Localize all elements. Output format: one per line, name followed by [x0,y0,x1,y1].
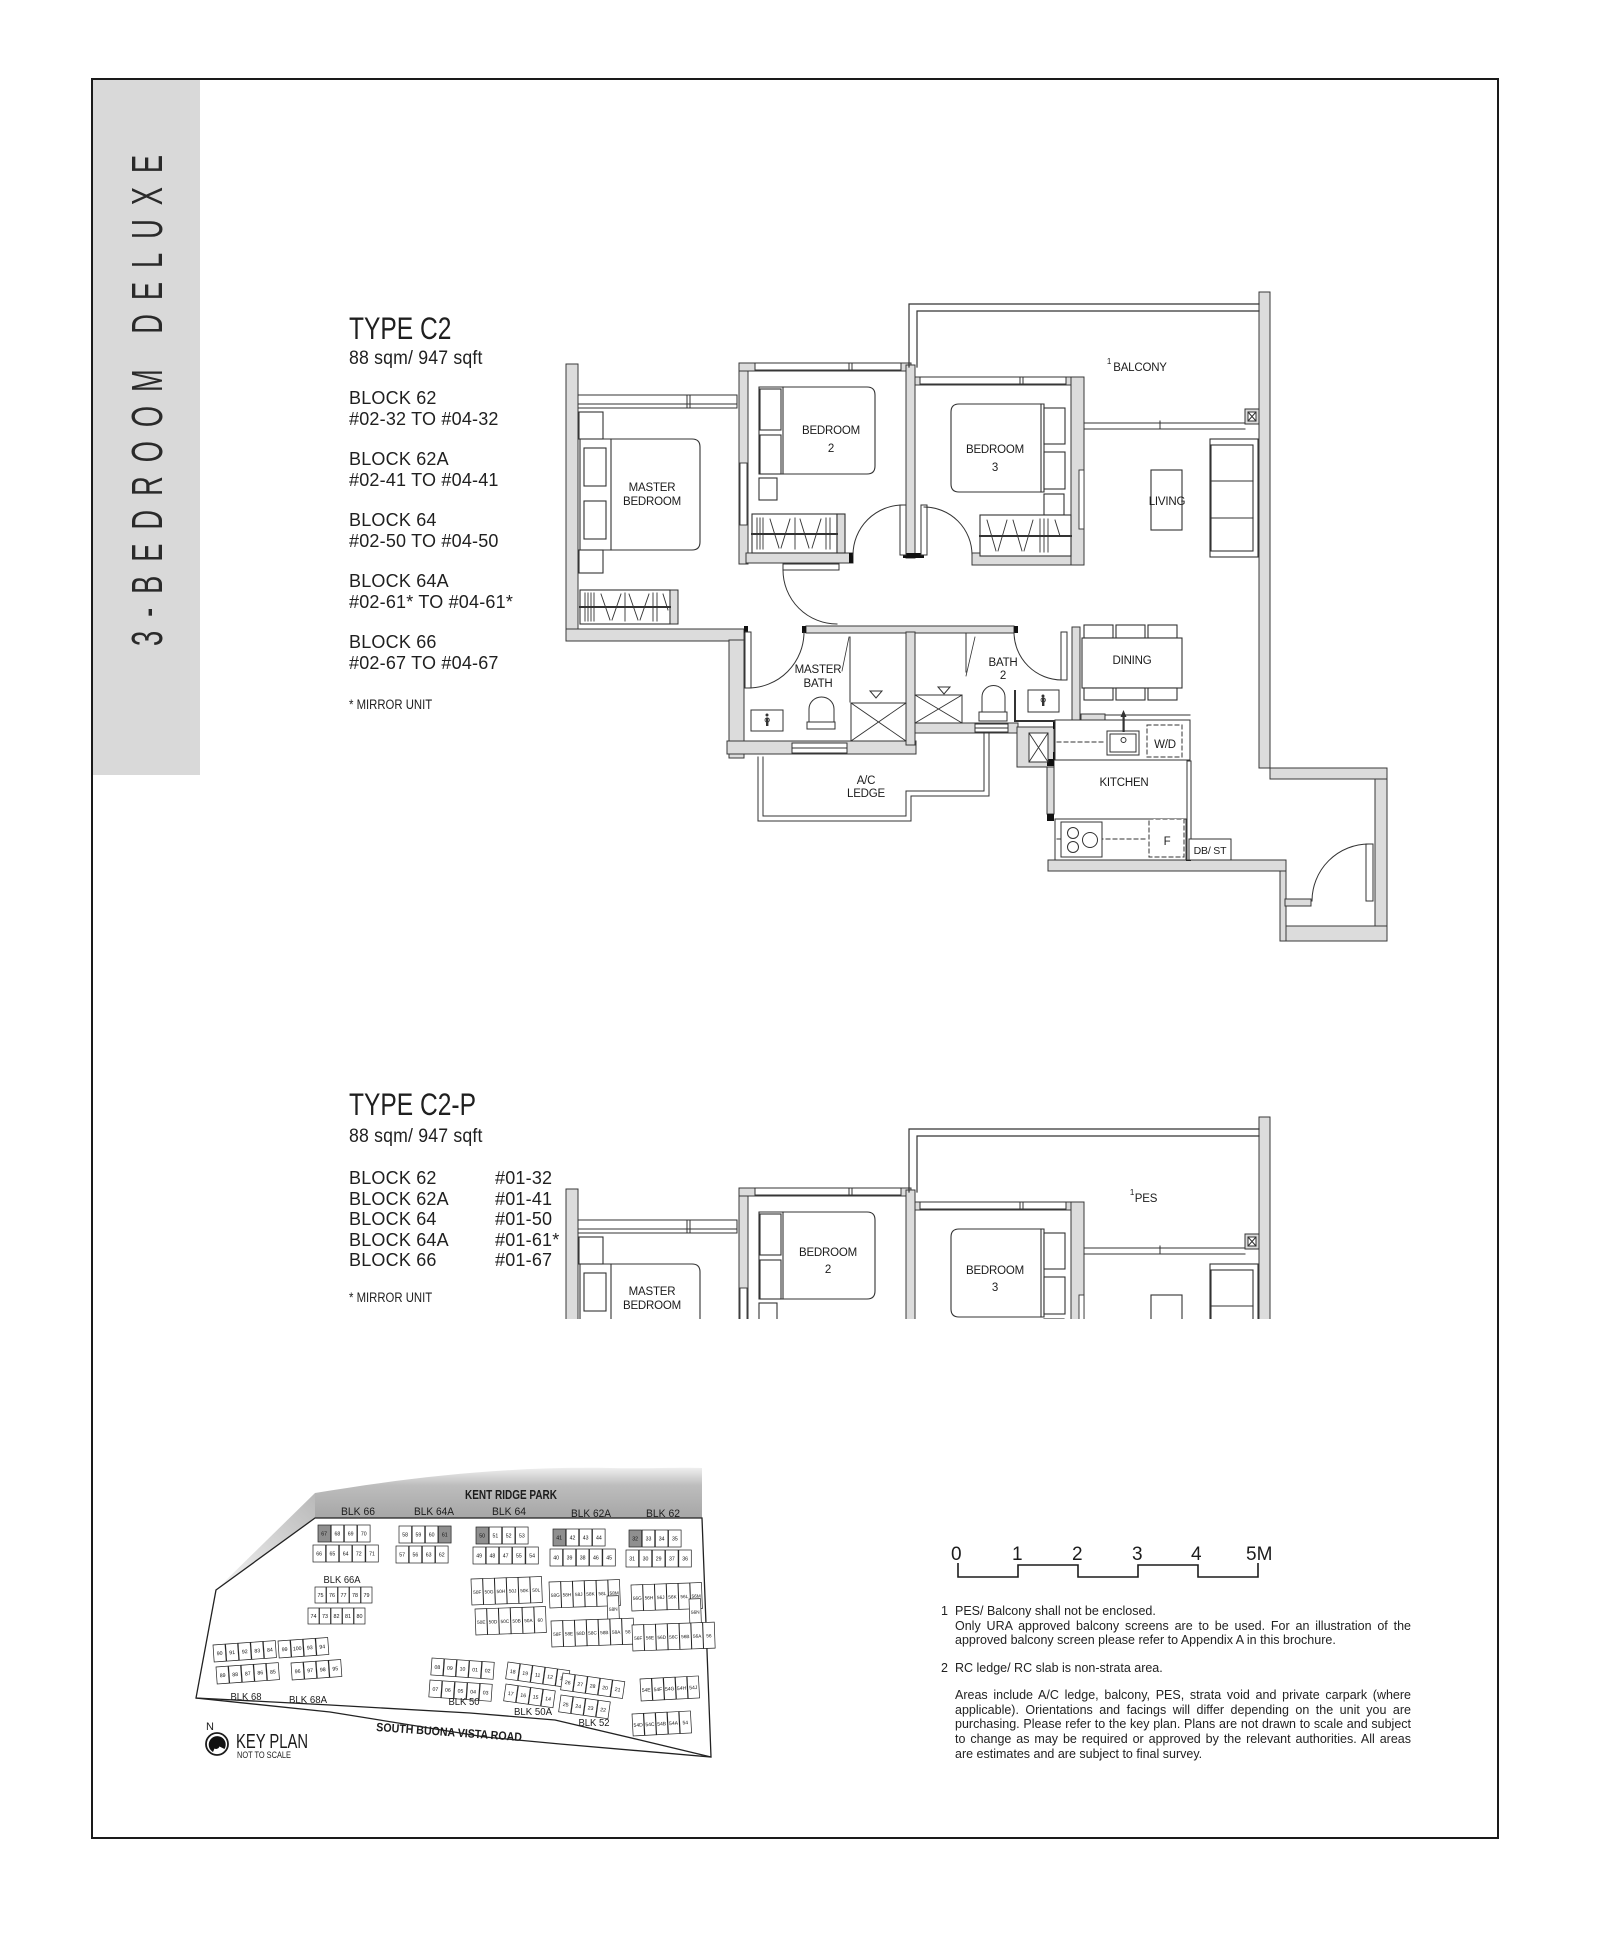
svg-text:27: 27 [577,1682,584,1689]
svg-text:58G: 58G [551,1593,560,1598]
svg-text:N: N [206,1721,214,1733]
svg-text:BATH: BATH [988,657,1017,669]
svg-text:54: 54 [682,1720,688,1726]
svg-text:56H: 56H [645,1595,654,1600]
svg-text:23: 23 [587,1705,594,1712]
svg-text:03: 03 [483,1690,489,1696]
svg-text:58: 58 [625,1629,631,1634]
svg-text:58L: 58L [598,1591,606,1596]
svg-text:63: 63 [426,1553,432,1559]
svg-text:50G: 50G [485,1589,494,1594]
svg-text:93: 93 [307,1645,313,1651]
svg-text:75: 75 [318,1593,324,1599]
svg-text:58N: 58N [609,1607,618,1612]
svg-text:58D: 58D [576,1631,585,1636]
svg-text:58B: 58B [600,1630,609,1635]
svg-text:45: 45 [606,1556,612,1562]
svg-text:31: 31 [629,1557,635,1563]
svg-text:KITCHEN: KITCHEN [1099,777,1148,789]
svg-text:NOT TO SCALE: NOT TO SCALE [237,1750,291,1761]
svg-text:56L: 56L [680,1594,688,1599]
svg-text:56J: 56J [657,1595,665,1600]
svg-text:22: 22 [600,1707,607,1714]
svg-text:87: 87 [245,1671,251,1677]
svg-text:42: 42 [570,1536,576,1542]
svg-text:2: 2 [825,1264,831,1276]
svg-text:57: 57 [399,1553,405,1559]
svg-text:09: 09 [447,1666,453,1672]
svg-text:44: 44 [596,1536,602,1542]
svg-text:3-BEDROOM DELUXE: 3-BEDROOM DELUXE [122,141,171,646]
svg-text:50L: 50L [532,1588,540,1593]
svg-text:BLK 50A: BLK 50A [514,1706,552,1718]
svg-text:96: 96 [295,1669,301,1675]
svg-text:18: 18 [509,1669,516,1676]
svg-text:BLK 68A: BLK 68A [289,1694,327,1706]
svg-text:56M: 56M [691,1594,700,1599]
svg-text:KENT RIDGE PARK: KENT RIDGE PARK [465,1488,557,1502]
svg-text:54G: 54G [665,1686,675,1692]
svg-text:4: 4 [1191,1544,1202,1565]
svg-text:85: 85 [270,1669,276,1675]
svg-text:5M: 5M [1246,1544,1272,1565]
svg-text:MASTER: MASTER [795,664,842,676]
svg-text:58J: 58J [575,1592,583,1597]
svg-text:58A: 58A [612,1630,621,1635]
svg-text:54C: 54C [645,1722,655,1728]
svg-text:76: 76 [329,1593,335,1599]
svg-text:98: 98 [320,1667,326,1673]
svg-text:90: 90 [217,1651,223,1657]
svg-text:56C: 56C [669,1634,678,1639]
svg-text:10: 10 [459,1666,465,1672]
svg-text:69: 69 [348,1532,354,1538]
svg-text:58E: 58E [565,1631,574,1636]
svg-text:49: 49 [476,1554,482,1560]
svg-text:04: 04 [470,1689,476,1695]
svg-text:41: 41 [556,1536,562,1542]
svg-text:34: 34 [659,1537,665,1543]
svg-text:16: 16 [520,1693,527,1700]
svg-text:BEDROOM: BEDROOM [802,425,860,437]
svg-text:1: 1 [1012,1544,1023,1565]
svg-text:58M: 58M [609,1591,618,1596]
svg-text:06: 06 [445,1688,451,1694]
svg-text:14: 14 [545,1696,552,1703]
svg-text:2: 2 [1072,1544,1083,1565]
svg-text:56N: 56N [691,1610,700,1615]
svg-text:54F: 54F [654,1687,663,1693]
svg-text:BLK 66A: BLK 66A [324,1574,361,1586]
svg-text:33: 33 [646,1537,652,1543]
svg-text:38: 38 [580,1556,586,1562]
svg-text:61: 61 [442,1533,448,1539]
svg-text:83: 83 [254,1648,260,1654]
svg-text:54J: 54J [689,1685,698,1691]
svg-text:24: 24 [575,1704,582,1711]
svg-text:01: 01 [472,1667,478,1673]
svg-text:BEDROOM: BEDROOM [966,1265,1024,1277]
svg-text:25: 25 [562,1702,569,1709]
svg-text:BLK 50: BLK 50 [449,1696,480,1708]
svg-text:DB/ ST: DB/ ST [1194,845,1227,857]
svg-text:84: 84 [267,1647,273,1653]
svg-text:BLK 52: BLK 52 [579,1717,610,1729]
svg-text:BLK 62A: BLK 62A [571,1508,612,1520]
svg-text:50K: 50K [520,1588,529,1593]
svg-text:BLK 66: BLK 66 [341,1506,375,1518]
svg-text:58K: 58K [586,1591,595,1596]
svg-text:37: 37 [669,1557,675,1563]
svg-text:17: 17 [507,1691,514,1698]
svg-text:74: 74 [311,1614,317,1620]
svg-text:BLK 62: BLK 62 [646,1508,680,1520]
svg-text:35: 35 [672,1537,678,1543]
svg-text:81: 81 [345,1614,351,1620]
svg-text:LEDGE: LEDGE [847,788,886,800]
svg-text:F: F [1164,836,1171,848]
svg-text:50A: 50A [524,1618,533,1623]
svg-text:50E: 50E [477,1620,486,1625]
svg-text:BEDROOM: BEDROOM [623,1300,681,1312]
svg-text:51: 51 [493,1534,499,1540]
svg-text:52: 52 [506,1534,512,1540]
svg-text:65: 65 [330,1552,336,1558]
svg-text:50B: 50B [512,1618,521,1623]
svg-text:53: 53 [519,1534,525,1540]
svg-text:78: 78 [352,1593,358,1599]
svg-text:36: 36 [682,1557,688,1563]
svg-text:2: 2 [828,443,834,455]
svg-text:50C: 50C [500,1619,509,1624]
svg-text:05: 05 [457,1688,463,1694]
svg-text:BALCONY: BALCONY [1113,362,1167,374]
svg-text:MASTER: MASTER [629,1286,676,1298]
svg-text:91: 91 [229,1650,235,1656]
svg-text:30: 30 [643,1557,649,1563]
svg-text:12: 12 [547,1674,554,1681]
svg-text:54: 54 [529,1554,535,1560]
svg-text:62: 62 [439,1553,445,1559]
svg-text:54D: 54D [633,1722,643,1728]
svg-text:56K: 56K [668,1594,677,1599]
svg-text:88: 88 [232,1672,238,1678]
svg-text:26: 26 [564,1680,571,1687]
svg-text:67: 67 [321,1532,327,1538]
svg-text:43: 43 [583,1536,589,1542]
svg-text:BLK 64A: BLK 64A [414,1506,455,1518]
svg-text:50J: 50J [509,1588,517,1593]
svg-text:80: 80 [357,1614,363,1620]
svg-text:50D: 50D [489,1619,498,1624]
svg-text:07: 07 [432,1687,438,1693]
svg-text:BATH: BATH [803,678,832,690]
svg-text:47: 47 [503,1554,509,1560]
svg-text:08: 08 [434,1665,440,1671]
svg-text:20: 20 [602,1685,609,1692]
svg-text:79: 79 [364,1593,370,1599]
svg-text:19: 19 [522,1671,529,1678]
svg-text:56B: 56B [681,1634,690,1639]
svg-text:0: 0 [951,1544,962,1565]
svg-text:55: 55 [516,1554,522,1560]
svg-text:50: 50 [479,1534,485,1540]
svg-text:40: 40 [553,1556,559,1562]
svg-text:02: 02 [485,1668,491,1674]
svg-text:56F: 56F [634,1636,642,1641]
svg-text:56E: 56E [646,1635,655,1640]
svg-text:48: 48 [490,1554,496,1560]
svg-text:92: 92 [242,1649,248,1655]
svg-text:70: 70 [361,1532,367,1538]
svg-text:3: 3 [992,462,998,474]
svg-text:66: 66 [316,1552,322,1558]
svg-text:15: 15 [532,1694,539,1701]
svg-text:46: 46 [593,1556,599,1562]
svg-text:99: 99 [282,1647,288,1653]
svg-text:64: 64 [343,1552,349,1558]
svg-text:54H: 54H [677,1686,687,1692]
svg-text:32: 32 [632,1537,638,1543]
svg-text:97: 97 [307,1668,313,1674]
svg-text:82: 82 [334,1614,340,1620]
svg-text:56A: 56A [693,1634,702,1639]
svg-text:BLK 68: BLK 68 [231,1691,262,1703]
svg-text:54B: 54B [657,1721,667,1727]
svg-text:56D: 56D [657,1635,666,1640]
svg-text:58F: 58F [553,1632,561,1637]
svg-text:58C: 58C [588,1630,597,1635]
svg-text:100: 100 [293,1646,302,1653]
svg-text:56: 56 [706,1633,712,1638]
svg-text:86: 86 [257,1670,263,1676]
svg-text:28: 28 [589,1683,596,1690]
svg-text:94: 94 [319,1644,325,1650]
svg-text:2: 2 [1000,670,1006,682]
svg-text:SOUTH BUONA VISTA ROAD: SOUTH BUONA VISTA ROAD [376,1720,523,1744]
svg-text:29: 29 [656,1557,662,1563]
svg-text:56: 56 [413,1553,419,1559]
svg-text:68: 68 [335,1532,341,1538]
svg-text:72: 72 [356,1552,362,1558]
svg-text:60: 60 [538,1618,544,1623]
svg-text:LIVING: LIVING [1149,496,1186,508]
svg-text:71: 71 [369,1552,375,1558]
svg-text:73: 73 [322,1614,328,1620]
svg-text:DINING: DINING [1112,655,1151,667]
svg-text:50H: 50H [496,1589,505,1594]
svg-text:56G: 56G [633,1596,642,1601]
svg-text:BLK 64: BLK 64 [492,1506,526,1518]
svg-text:89: 89 [220,1673,226,1679]
svg-text:39: 39 [567,1556,573,1562]
svg-text:77: 77 [341,1593,347,1599]
svg-text:BEDROOM: BEDROOM [799,1247,857,1259]
svg-text:PES: PES [1135,1193,1158,1205]
svg-text:3: 3 [992,1282,998,1294]
svg-text:54A: 54A [669,1721,679,1727]
svg-text:21: 21 [614,1687,621,1694]
svg-text:A/C: A/C [857,775,876,787]
svg-text:58: 58 [402,1533,408,1539]
svg-text:BEDROOM: BEDROOM [623,496,681,508]
svg-text:BEDROOM: BEDROOM [966,444,1024,456]
svg-text:60: 60 [429,1533,435,1539]
svg-text:1: 1 [1107,357,1112,366]
svg-text:58H: 58H [563,1592,572,1597]
svg-text:MASTER: MASTER [629,482,676,494]
svg-text:50F: 50F [473,1590,481,1595]
svg-text:11: 11 [534,1672,540,1679]
svg-text:54E: 54E [642,1687,652,1693]
svg-text:3: 3 [1132,1544,1143,1565]
svg-text:59: 59 [416,1533,422,1539]
svg-text:W/D: W/D [1154,739,1176,751]
svg-text:95: 95 [332,1666,338,1672]
